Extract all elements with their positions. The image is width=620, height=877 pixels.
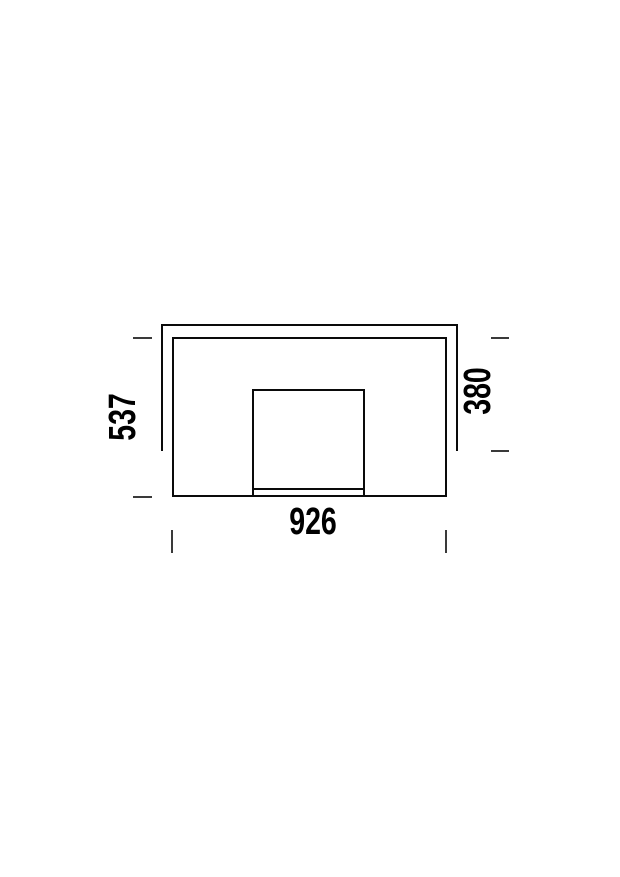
dim-tick-bottom-left [171, 530, 173, 553]
drawing-canvas: 537 380 926 [0, 0, 620, 877]
top-panel-outline-top [161, 324, 458, 326]
dim-label-right-height: 380 [398, 331, 558, 451]
dim-tick-bottom-right [445, 530, 447, 553]
dim-label-bottom-width: 926 [253, 500, 373, 544]
dim-tick-left-top [133, 337, 152, 339]
dim-label-left-height: 537 [43, 357, 203, 477]
door-outline [252, 389, 365, 497]
door-plinth-line [252, 488, 365, 490]
dim-tick-left-bottom [133, 496, 152, 498]
